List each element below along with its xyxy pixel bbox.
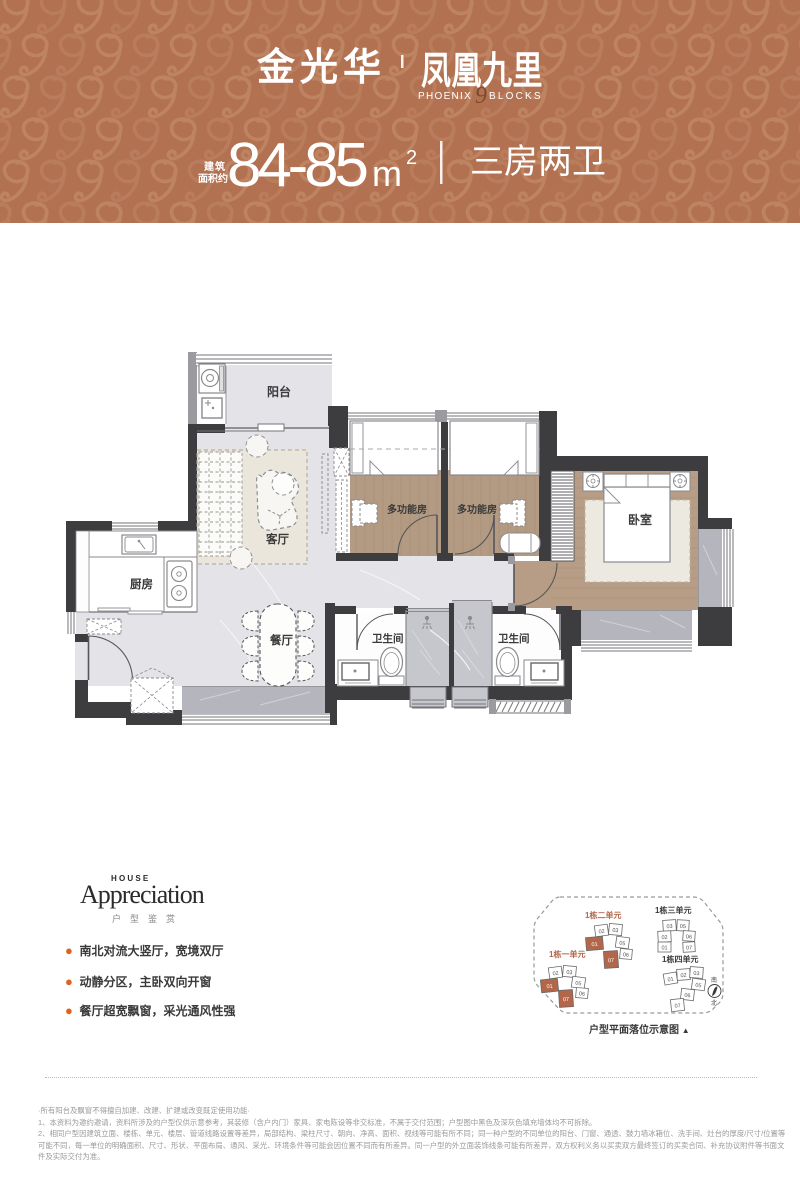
svg-text:01: 01 bbox=[591, 942, 598, 949]
svg-text:02: 02 bbox=[552, 971, 559, 978]
svg-text:02: 02 bbox=[661, 935, 667, 941]
svg-text:07: 07 bbox=[563, 997, 570, 1003]
svg-text:南: 南 bbox=[711, 976, 717, 984]
svg-text:06: 06 bbox=[579, 991, 586, 998]
svg-text:01: 01 bbox=[667, 976, 674, 983]
svg-text:北: 北 bbox=[711, 999, 717, 1007]
svg-text:1栋四单元: 1栋四单元 bbox=[662, 954, 698, 964]
svg-text:01: 01 bbox=[661, 946, 667, 952]
svg-text:1栋二单元: 1栋二单元 bbox=[585, 910, 621, 920]
svg-text:06: 06 bbox=[623, 952, 630, 959]
svg-text:07: 07 bbox=[608, 958, 615, 964]
svg-text:03: 03 bbox=[566, 970, 573, 977]
svg-text:03: 03 bbox=[666, 924, 673, 930]
svg-text:02: 02 bbox=[598, 929, 605, 936]
svg-text:06: 06 bbox=[684, 993, 691, 1000]
svg-text:1栋一单元: 1栋一单元 bbox=[549, 949, 585, 959]
svg-text:05: 05 bbox=[619, 941, 626, 948]
svg-text:05: 05 bbox=[575, 981, 582, 988]
svg-text:01: 01 bbox=[546, 984, 553, 991]
svg-text:07: 07 bbox=[674, 1003, 681, 1010]
svg-text:07: 07 bbox=[686, 945, 692, 951]
svg-text:06: 06 bbox=[686, 934, 693, 940]
svg-text:03: 03 bbox=[612, 928, 619, 935]
svg-text:03: 03 bbox=[693, 971, 700, 977]
svg-text:05: 05 bbox=[680, 924, 686, 930]
svg-text:02: 02 bbox=[680, 973, 687, 979]
svg-text:05: 05 bbox=[695, 983, 702, 990]
svg-text:1栋三单元: 1栋三单元 bbox=[655, 905, 691, 915]
